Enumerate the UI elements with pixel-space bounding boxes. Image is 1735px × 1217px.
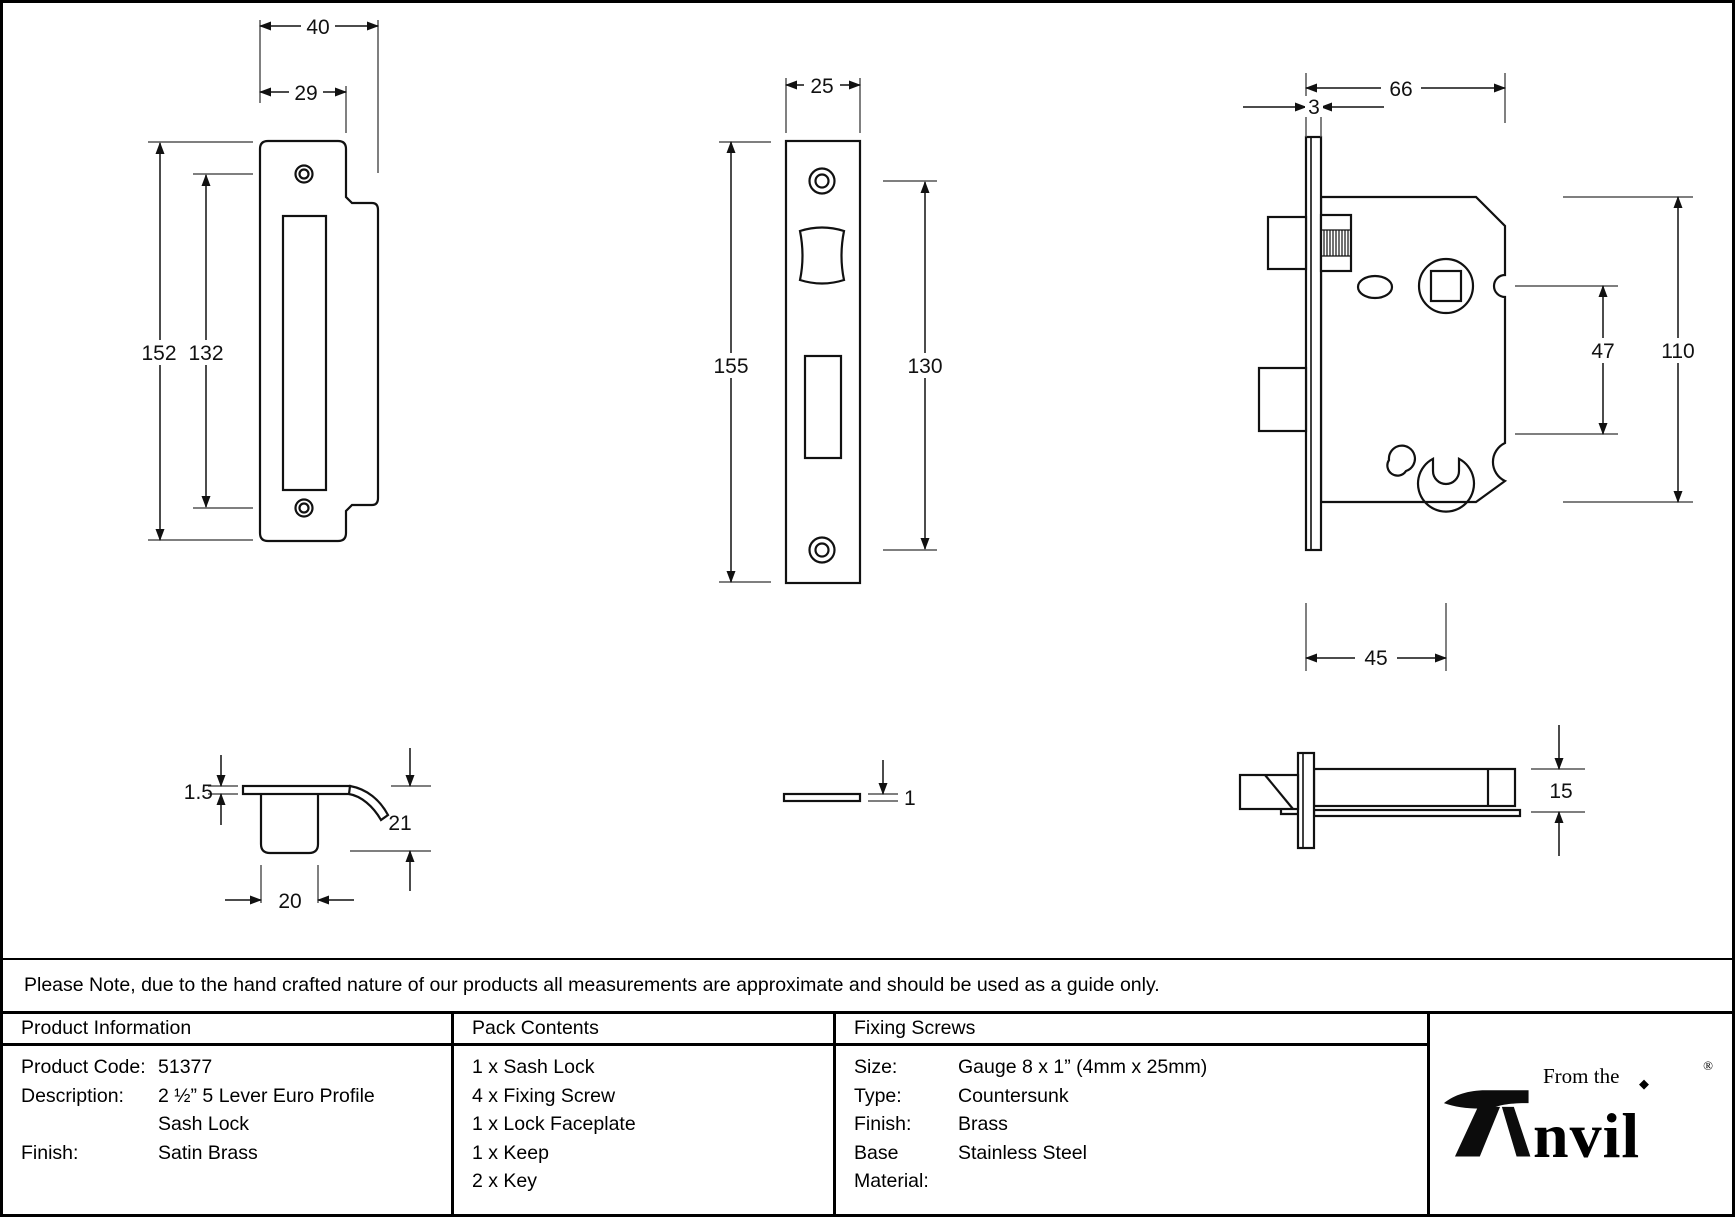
dim-keep-box-width: 20	[278, 890, 301, 913]
faceplate-edge-plate	[784, 794, 860, 801]
dim-keep-plate-thickness: 1.5	[184, 781, 213, 804]
dim-faceplate-thickness: 1	[904, 787, 916, 810]
pack-item: 1 x Keep	[472, 1139, 833, 1168]
spec-sheet-page: 40 29 152 132	[0, 0, 1735, 1217]
lock-side-faceplate	[1298, 753, 1314, 848]
faceplate-edge-view: 1	[784, 760, 916, 810]
keep-profile-box	[261, 794, 318, 853]
faceplate-outline	[786, 141, 860, 583]
lock-side-dimensions: 15	[1531, 725, 1585, 856]
lock-body-view	[1259, 137, 1505, 550]
logo-diamond-icon: ◆	[1639, 1076, 1649, 1092]
screw-size-row: Size: Gauge 8 x 1” (4mm x 25mm)	[854, 1053, 1427, 1082]
keep-profile-plate	[243, 786, 350, 794]
dim-keep-width-overall: 40	[306, 16, 329, 39]
dim-faceplate-height-inner: 130	[907, 355, 942, 378]
screw-finish-label: Finish:	[854, 1110, 958, 1139]
dim-keep-height-overall: 152	[141, 342, 176, 365]
latch-bolt-head	[1268, 217, 1306, 269]
description-row: Description: 2 ½” 5 Lever Euro Profile	[21, 1082, 451, 1111]
lock-faceplate-edge	[1306, 137, 1321, 550]
finish-row: Finish: Satin Brass	[21, 1139, 451, 1168]
product-code-row: Product Code: 51377	[21, 1053, 451, 1082]
brand-logo-cell: From the ◆ nvil ®	[1427, 1014, 1732, 1214]
dim-lock-height: 110	[1661, 340, 1694, 363]
description-value-line1: 2 ½” 5 Lever Euro Profile	[158, 1082, 375, 1111]
keep-profile-view	[243, 786, 388, 853]
screw-type-label: Type:	[854, 1082, 958, 1111]
dim-lock-case-thickness: 15	[1549, 780, 1572, 803]
screw-base-material-row: Base Material: Stainless Steel	[854, 1139, 1427, 1196]
dim-keep-depth: 21	[388, 812, 411, 835]
dim-keep-height-inner: 132	[188, 342, 223, 365]
lock-side-case	[1314, 769, 1515, 806]
description-label: Description:	[21, 1082, 158, 1111]
dim-lock-faceplate-thickness: 3	[1308, 96, 1320, 119]
screw-type-row: Type: Countersunk	[854, 1082, 1427, 1111]
from-the-anvil-logo: From the ◆ nvil ®	[1443, 1062, 1719, 1166]
lock-side-flange	[1314, 810, 1520, 816]
pack-item: 1 x Lock Faceplate	[472, 1110, 833, 1139]
dim-lock-centres: 47	[1591, 340, 1614, 363]
dim-faceplate-width: 25	[810, 75, 833, 98]
deadbolt-head	[1259, 368, 1306, 431]
keep-plate-outline	[260, 141, 378, 541]
product-code-label: Product Code:	[21, 1053, 158, 1082]
anvil-a-icon	[1443, 1082, 1535, 1162]
dim-faceplate-height-overall: 155	[713, 355, 748, 378]
note-text: Please Note, due to the hand crafted nat…	[24, 974, 1160, 997]
finish-value: Satin Brass	[158, 1139, 258, 1168]
measurement-note: Please Note, due to the hand crafted nat…	[3, 958, 1732, 1011]
description-row-2: Sash Lock	[21, 1110, 451, 1139]
dim-keep-width-inner: 29	[294, 82, 317, 105]
screw-finish-row: Finish: Brass	[854, 1110, 1427, 1139]
product-information-header: Product Information	[3, 1014, 451, 1046]
product-code-value: 51377	[158, 1053, 212, 1082]
product-information-column: Product Information Product Code: 51377 …	[3, 1014, 451, 1214]
product-info-table: Product Information Product Code: 51377 …	[3, 1011, 1732, 1214]
lock-side-view	[1240, 753, 1520, 848]
fixing-screws-header: Fixing Screws	[836, 1014, 1427, 1046]
pack-item: 4 x Fixing Screw	[472, 1082, 833, 1111]
screw-finish-value: Brass	[958, 1110, 1008, 1139]
lock-side-latch	[1240, 775, 1298, 814]
screw-base-material-label: Base Material:	[854, 1139, 958, 1196]
pack-item: 1 x Sash Lock	[472, 1053, 833, 1082]
logo-prefix: From the	[1543, 1064, 1619, 1089]
pack-contents-column: Pack Contents 1 x Sash Lock 4 x Fixing S…	[451, 1014, 833, 1214]
screw-base-material-value: Stainless Steel	[958, 1139, 1087, 1196]
registered-trademark-icon: ®	[1703, 1058, 1713, 1074]
pack-item: 2 x Key	[472, 1167, 833, 1196]
keep-profile-dimensions: 1.5 21 20	[184, 748, 431, 913]
pack-contents-header: Pack Contents	[454, 1014, 833, 1046]
keep-front-view	[260, 141, 378, 541]
screw-type-value: Countersunk	[958, 1082, 1069, 1111]
faceplate-front-view	[786, 141, 860, 583]
finish-label: Finish:	[21, 1139, 158, 1168]
logo-brand-text: nvil	[1533, 1104, 1640, 1168]
screw-size-label: Size:	[854, 1053, 958, 1082]
technical-drawing-canvas: 40 29 152 132	[3, 3, 1735, 958]
dim-lock-backset: 45	[1364, 647, 1387, 670]
keep-profile-lip	[349, 786, 388, 820]
screw-size-value: Gauge 8 x 1” (4mm x 25mm)	[958, 1053, 1207, 1082]
fixing-screws-column: Fixing Screws Size: Gauge 8 x 1” (4mm x …	[833, 1014, 1427, 1214]
description-value-line2: Sash Lock	[158, 1110, 249, 1139]
dim-lock-width: 66	[1389, 78, 1412, 101]
